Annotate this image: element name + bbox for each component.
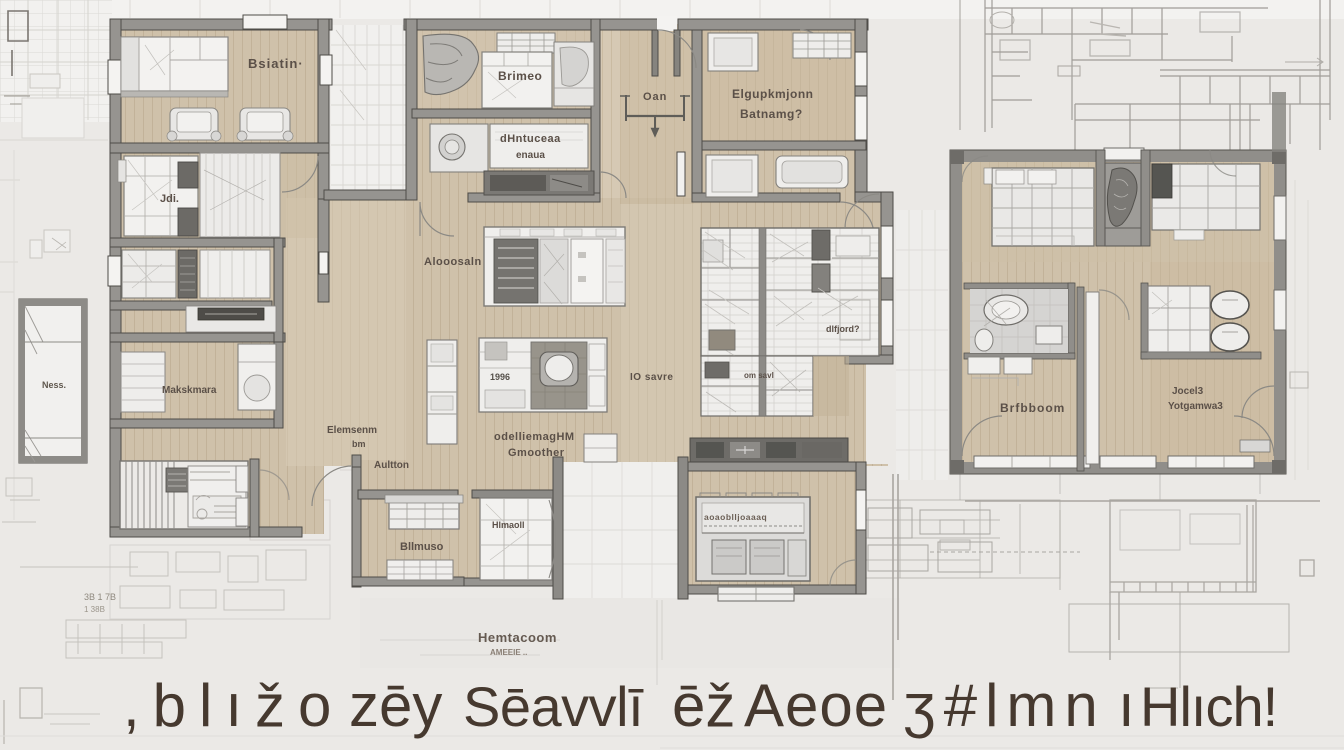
svg-text:Alooosaln: Alooosaln	[424, 256, 482, 268]
svg-text:,blıžo: ,blıžo	[123, 672, 344, 739]
svg-text:bm: bm	[352, 439, 366, 449]
svg-text:Makskmara: Makskmara	[162, 385, 217, 396]
svg-text:dlfjord?: dlfjord?	[826, 324, 860, 334]
svg-text:Bllmuso: Bllmuso	[400, 541, 444, 553]
svg-text:Bsiatin·: Bsiatin·	[248, 56, 304, 71]
svg-text:AMEEIE ..: AMEEIE ..	[490, 648, 527, 657]
svg-text:Jocel3: Jocel3	[1172, 386, 1204, 397]
svg-text:Elgupkmjonn: Elgupkmjonn	[732, 87, 814, 101]
svg-text:zēy: zēy	[349, 672, 442, 739]
svg-text:IO savre: IO savre	[630, 372, 673, 383]
svg-text:Brimeo: Brimeo	[498, 69, 542, 83]
svg-text:Yotgamwa3: Yotgamwa3	[1168, 401, 1223, 412]
svg-text:Hlmaoll: Hlmaoll	[492, 520, 525, 530]
svg-text:Aeoe: Aeoe	[744, 672, 888, 739]
svg-text:dHntuceaa: dHntuceaa	[500, 133, 561, 145]
svg-text:ēž: ēž	[672, 672, 735, 739]
svg-text:Sēavvlī: Sēavvlī	[463, 675, 644, 738]
svg-text:ʒ#lmn: ʒ#lmn	[903, 672, 1106, 739]
svg-text:3B 1 7B: 3B 1 7B	[84, 592, 116, 602]
svg-text:Ness.: Ness.	[42, 380, 66, 390]
svg-text:enaua: enaua	[516, 150, 545, 161]
svg-text:ı: ı	[1118, 672, 1135, 739]
svg-text:aoaoblljoaaaq: aoaoblljoaaaq	[704, 512, 767, 522]
svg-text:Batnamg?: Batnamg?	[740, 107, 803, 121]
svg-text:Jdi.: Jdi.	[160, 193, 179, 205]
svg-text:Hlıch!: Hlıch!	[1140, 675, 1277, 738]
svg-text:om savl: om savl	[744, 371, 774, 380]
svg-text:odelliemagHM: odelliemagHM	[494, 431, 575, 443]
svg-text:1 38B: 1 38B	[84, 605, 105, 614]
svg-text:Elemsenm: Elemsenm	[327, 425, 377, 436]
svg-text:1996: 1996	[490, 372, 510, 382]
svg-text:Brfbboom: Brfbboom	[1000, 401, 1065, 415]
svg-text:Gmoother: Gmoother	[508, 447, 565, 459]
svg-text:Hemtacoom: Hemtacoom	[478, 630, 557, 645]
svg-text:Oan: Oan	[643, 91, 667, 103]
svg-text:Aultton: Aultton	[374, 460, 409, 471]
